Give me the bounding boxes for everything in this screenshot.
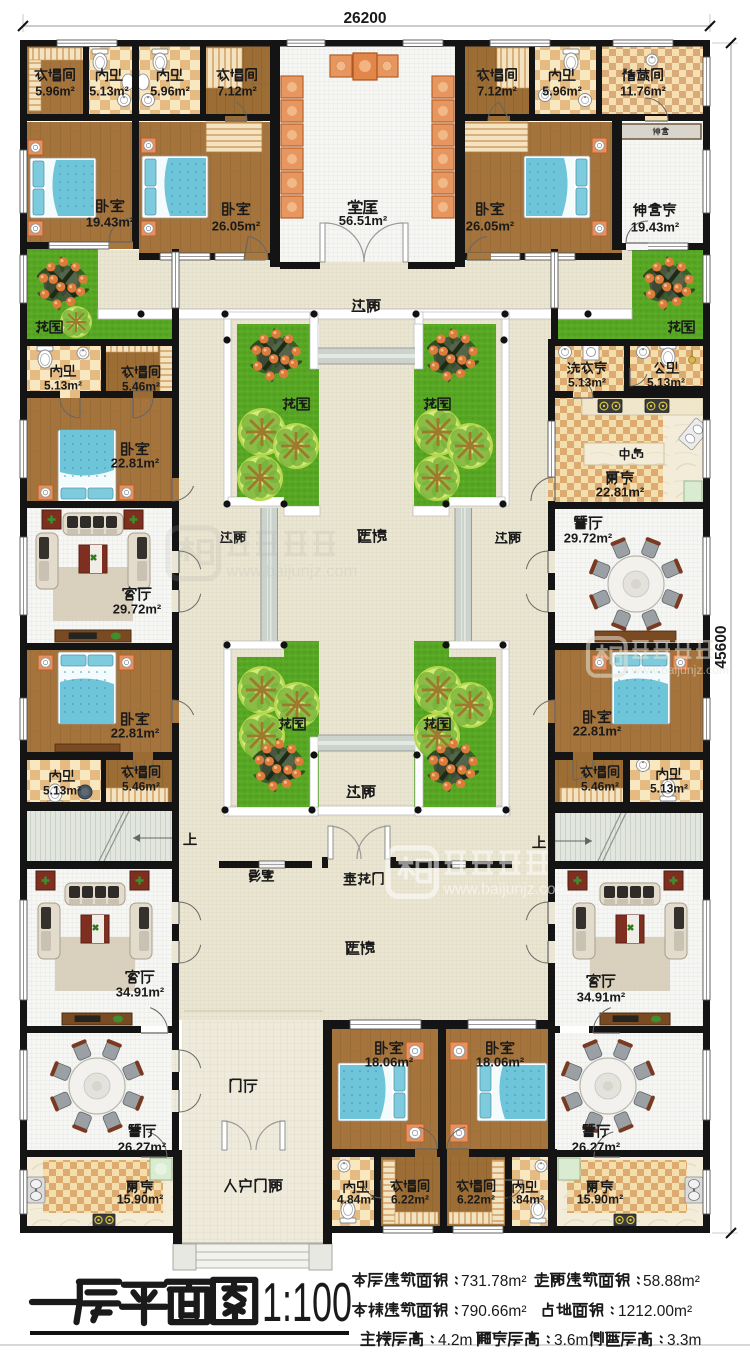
svg-text:4.2m: 4.2m [438, 1332, 472, 1349]
svg-text:18.06m²: 18.06m² [365, 1055, 414, 1070]
svg-text:3.3m: 3.3m [667, 1332, 701, 1349]
svg-text:5.46m²: 5.46m² [122, 779, 160, 793]
svg-text:5.13m²: 5.13m² [647, 375, 685, 389]
svg-text:6.22m²: 6.22m² [457, 1192, 495, 1206]
svg-text:34.91m²: 34.91m² [577, 990, 626, 1005]
svg-text:4.84m²: 4.84m² [506, 1192, 544, 1206]
svg-text:45600: 45600 [713, 625, 730, 668]
svg-text:5.13m²: 5.13m² [43, 783, 81, 797]
svg-text:5.96m²: 5.96m² [542, 85, 582, 99]
svg-text:5.13m²: 5.13m² [568, 375, 606, 389]
svg-text:5.46m²: 5.46m² [122, 379, 160, 393]
svg-text:22.81m²: 22.81m² [573, 724, 622, 739]
svg-text:7.12m²: 7.12m² [477, 85, 517, 99]
svg-text:29.72m²: 29.72m² [564, 531, 613, 546]
svg-text:19.43m²: 19.43m² [631, 220, 680, 235]
svg-text:11.76m²: 11.76m² [620, 85, 666, 99]
svg-text:58.88m²: 58.88m² [643, 1273, 700, 1290]
svg-text:18.06m²: 18.06m² [476, 1055, 525, 1070]
svg-text:19.43m²: 19.43m² [86, 215, 135, 230]
svg-text:34.91m²: 34.91m² [116, 985, 165, 1000]
svg-text:4.84m²: 4.84m² [337, 1192, 375, 1206]
svg-text:29.72m²: 29.72m² [113, 602, 162, 617]
svg-text:7.12m²: 7.12m² [217, 85, 257, 99]
svg-text:www.baijunjz.com: www.baijunjz.com [443, 881, 569, 898]
svg-text:22.81m²: 22.81m² [596, 485, 645, 500]
svg-text:5.96m²: 5.96m² [150, 85, 190, 99]
svg-text:6.22m²: 6.22m² [391, 1192, 429, 1206]
svg-text:26.27m²: 26.27m² [572, 1140, 621, 1155]
svg-text:5.13m²: 5.13m² [650, 781, 688, 795]
svg-text:5.96m²: 5.96m² [35, 85, 75, 99]
svg-text:1212.00m²: 1212.00m² [618, 1303, 692, 1320]
svg-text:26200: 26200 [343, 10, 386, 27]
svg-text:15.90m²: 15.90m² [117, 1193, 164, 1207]
svg-text:22.81m²: 22.81m² [111, 726, 160, 741]
svg-text:56.51m²: 56.51m² [339, 213, 388, 228]
svg-text:5.13m²: 5.13m² [89, 85, 129, 99]
svg-text:26.05m²: 26.05m² [466, 219, 515, 234]
svg-text:15.90m²: 15.90m² [577, 1193, 624, 1207]
svg-text:731.78m²: 731.78m² [461, 1273, 526, 1290]
svg-text:5.46m²: 5.46m² [581, 779, 619, 793]
svg-text:22.81m²: 22.81m² [111, 456, 160, 471]
svg-text:1:100: 1:100 [262, 1271, 352, 1333]
svg-text:5.13m²: 5.13m² [44, 378, 82, 392]
svg-text:3.6m: 3.6m [554, 1332, 588, 1349]
svg-text:26.27m²: 26.27m² [118, 1140, 167, 1155]
svg-text:26.05m²: 26.05m² [212, 219, 261, 234]
svg-text:790.66m²: 790.66m² [461, 1303, 526, 1320]
svg-text:www.baijunjz.com: www.baijunjz.com [225, 562, 357, 580]
